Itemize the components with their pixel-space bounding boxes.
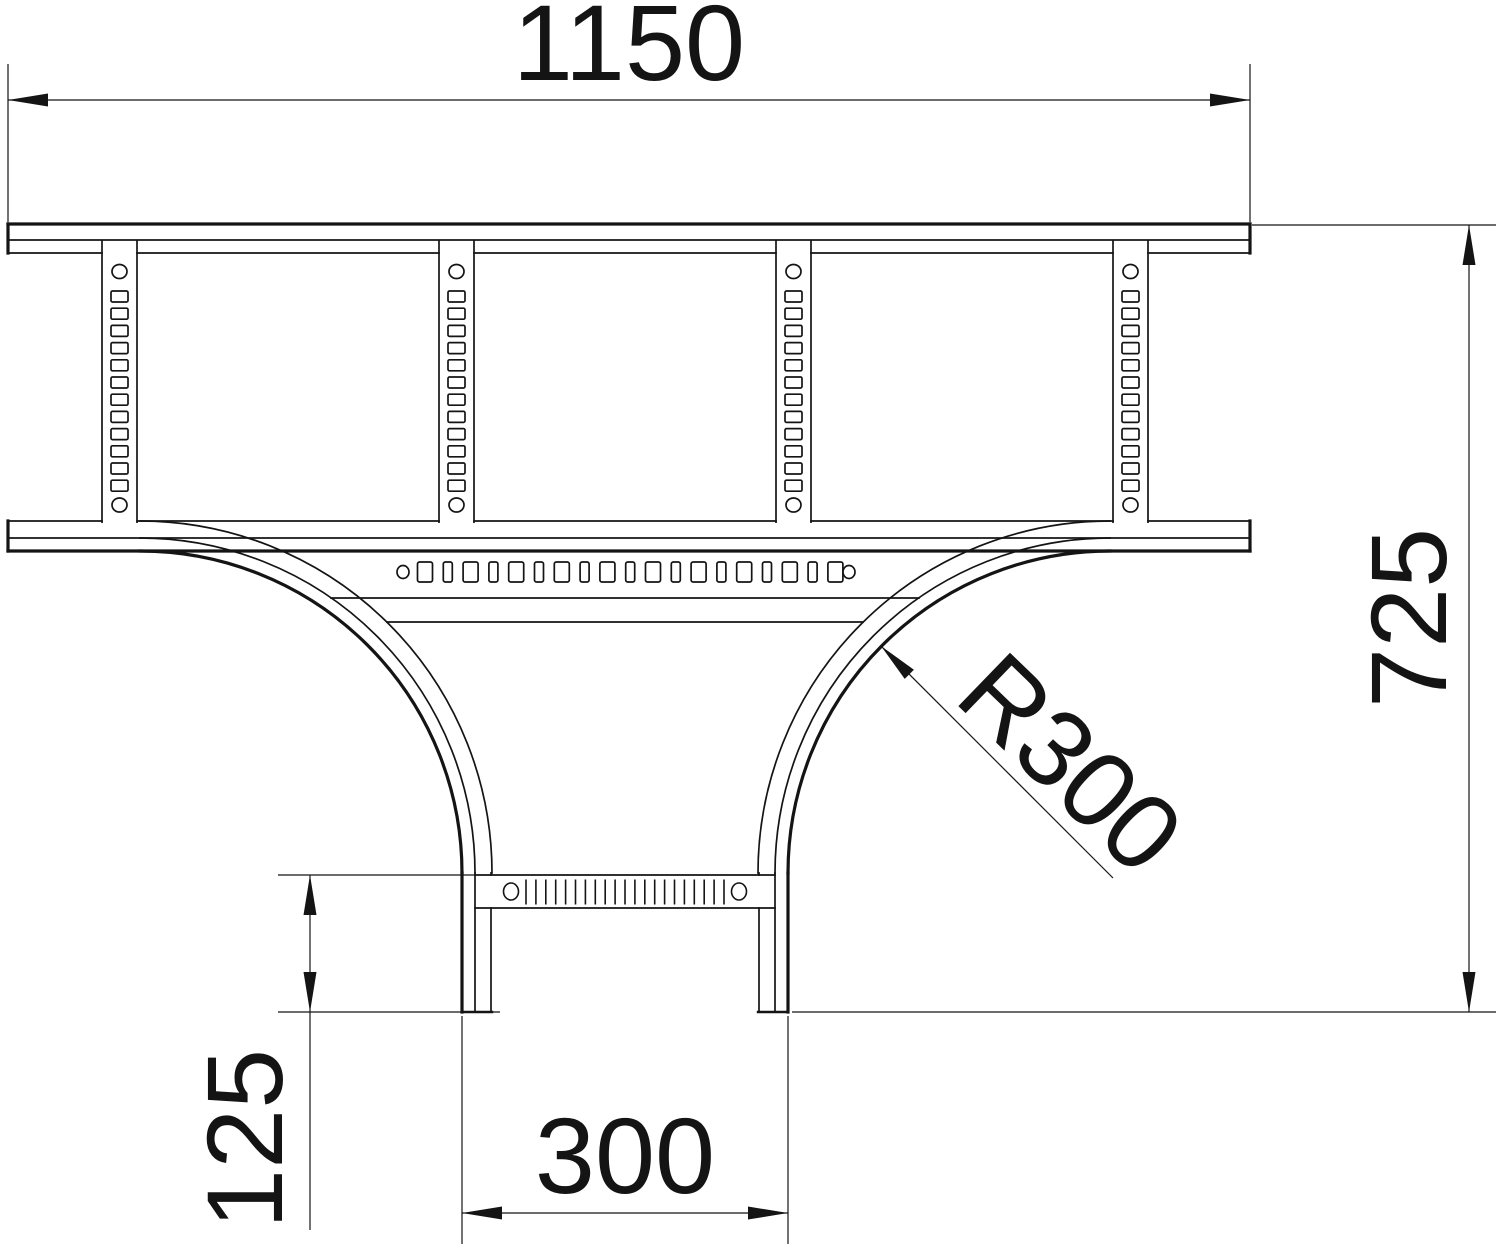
plate-hole-square bbox=[808, 562, 817, 582]
arrow-725-bottom bbox=[1463, 972, 1476, 1012]
rung-slot bbox=[448, 291, 465, 302]
rung-slot bbox=[1122, 429, 1139, 440]
ladder-profile-lines bbox=[8, 240, 1250, 1012]
rung-slot bbox=[785, 463, 802, 474]
plate-hole-square bbox=[691, 562, 706, 582]
branch-rung-hole bbox=[732, 883, 747, 900]
rung-slot bbox=[448, 325, 465, 336]
rung-fixing-hole bbox=[449, 265, 464, 279]
arrow-1150-left bbox=[8, 94, 48, 107]
rung-slot bbox=[111, 394, 128, 405]
rung-slot bbox=[785, 446, 802, 457]
plate-hole-square bbox=[600, 562, 615, 582]
rung-slot bbox=[1122, 480, 1139, 491]
fillet-arc-left-mid bbox=[140, 538, 475, 873]
rung-fixing-hole bbox=[1123, 265, 1138, 279]
rung-slot bbox=[1122, 343, 1139, 354]
ladder-rung bbox=[776, 240, 811, 523]
rung-fixing-hole bbox=[786, 498, 801, 512]
rung-slot bbox=[111, 411, 128, 422]
rung-slot bbox=[448, 463, 465, 474]
dim-text-300: 300 bbox=[535, 1095, 715, 1216]
rung-slot bbox=[448, 394, 465, 405]
rung-slot bbox=[785, 429, 802, 440]
rung-slot bbox=[448, 360, 465, 371]
ladder-rung bbox=[439, 240, 474, 523]
rung-slot bbox=[1122, 325, 1139, 336]
rung-slot bbox=[785, 377, 802, 388]
dim-text-1150: 1150 bbox=[513, 0, 745, 103]
rung-fixing-hole bbox=[112, 265, 127, 279]
drawing-sheet: 1150 725 R300 300 125 bbox=[0, 0, 1500, 1245]
rung-slot bbox=[785, 360, 802, 371]
plate-hole-square bbox=[489, 562, 498, 582]
plate-hole-square bbox=[509, 562, 524, 582]
rung-slot bbox=[1122, 308, 1139, 319]
ladder-rung bbox=[102, 240, 137, 523]
rung-slot bbox=[785, 325, 802, 336]
rung-slot bbox=[1122, 446, 1139, 457]
plate-hole-square bbox=[554, 562, 569, 582]
rung-slot bbox=[785, 394, 802, 405]
arrow-300-left bbox=[462, 1207, 502, 1220]
plate-hole-square bbox=[671, 562, 680, 582]
arrow-125-down bbox=[304, 972, 317, 1012]
rung-slot bbox=[785, 480, 802, 491]
rung-slot bbox=[448, 411, 465, 422]
plate-hole-square bbox=[717, 562, 726, 582]
ladder-rung bbox=[1113, 240, 1148, 523]
rung-fixing-hole bbox=[1123, 498, 1138, 512]
plate-hole-round bbox=[397, 566, 409, 579]
rung-slot bbox=[448, 308, 465, 319]
rung-slot bbox=[1122, 411, 1139, 422]
rung-slot bbox=[448, 377, 465, 388]
rung-slot bbox=[111, 343, 128, 354]
rung-slot bbox=[111, 429, 128, 440]
plate-hole-square bbox=[443, 562, 452, 582]
arrow-725-top bbox=[1463, 225, 1476, 265]
rung-slot bbox=[448, 446, 465, 457]
arrow-300-right bbox=[748, 1207, 788, 1220]
rung-slot bbox=[111, 360, 128, 371]
rung-slot bbox=[111, 308, 128, 319]
tee-plate-perforation bbox=[397, 562, 855, 582]
rung-fixing-hole bbox=[786, 265, 801, 279]
branch-rung-hole bbox=[504, 883, 519, 900]
rung-slot bbox=[448, 343, 465, 354]
rung-slot bbox=[111, 291, 128, 302]
dim-text-725: 725 bbox=[1348, 528, 1469, 708]
rung-slot bbox=[1122, 394, 1139, 405]
rung-fixing-hole bbox=[449, 498, 464, 512]
rung-slot bbox=[1122, 377, 1139, 388]
ladder-outline bbox=[8, 224, 1250, 1012]
rung-slot bbox=[785, 411, 802, 422]
rung-slot bbox=[1122, 291, 1139, 302]
fillet-arc-left-inner bbox=[140, 521, 492, 873]
dim-text-r300: R300 bbox=[936, 630, 1206, 896]
rung-slot bbox=[111, 446, 128, 457]
arrow-125-up bbox=[304, 875, 317, 915]
rung-slot bbox=[111, 325, 128, 336]
rung-slot bbox=[785, 308, 802, 319]
plate-hole-square bbox=[737, 562, 752, 582]
dim-text-125: 125 bbox=[184, 1049, 305, 1229]
plate-hole-square bbox=[463, 562, 478, 582]
rung-slot bbox=[111, 480, 128, 491]
rung-slot bbox=[785, 343, 802, 354]
arrow-r300 bbox=[881, 646, 914, 679]
plate-hole-square bbox=[646, 562, 661, 582]
fillet-arc-left-outer bbox=[140, 551, 462, 873]
plate-hole-square bbox=[418, 562, 433, 582]
rung-slot bbox=[448, 429, 465, 440]
plate-hole-square bbox=[580, 562, 589, 582]
plate-hole-square bbox=[626, 562, 635, 582]
rung-slot bbox=[111, 463, 128, 474]
rung-slot bbox=[448, 480, 465, 491]
rung-slot bbox=[111, 377, 128, 388]
rail-end-caps bbox=[8, 224, 1250, 551]
plate-hole-square bbox=[535, 562, 544, 582]
rung-slot bbox=[1122, 463, 1139, 474]
plate-hole-round bbox=[843, 566, 855, 579]
plate-hole-square bbox=[828, 562, 843, 582]
plate-hole-square bbox=[763, 562, 772, 582]
rung-slot bbox=[785, 291, 802, 302]
tee-plate-lines bbox=[331, 598, 919, 622]
arrow-1150-right bbox=[1210, 94, 1250, 107]
dimension-labels: 1150 725 R300 300 125 bbox=[184, 0, 1469, 1229]
technical-drawing: 1150 725 R300 300 125 bbox=[0, 0, 1500, 1245]
plate-hole-square bbox=[782, 562, 797, 582]
rung-fixing-hole bbox=[112, 498, 127, 512]
branch-rung bbox=[504, 880, 747, 905]
rung-slot bbox=[1122, 360, 1139, 371]
